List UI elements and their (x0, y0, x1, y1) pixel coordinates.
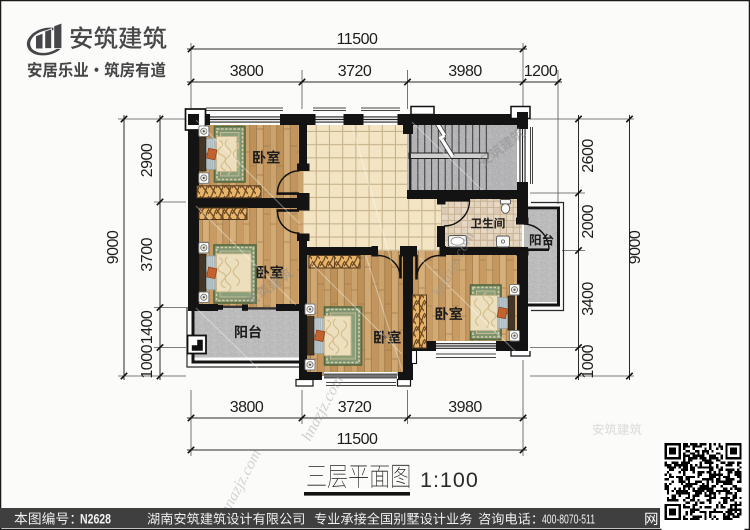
svg-text:1000: 1000 (139, 344, 156, 378)
svg-text:1200: 1200 (524, 63, 558, 80)
svg-text:2000: 2000 (580, 204, 597, 238)
svg-text:400-8070-511: 400-8070-511 (542, 511, 595, 526)
svg-text:11500: 11500 (337, 431, 378, 448)
svg-text:3720: 3720 (338, 63, 372, 80)
svg-text:2600: 2600 (580, 139, 597, 173)
svg-text:2900: 2900 (139, 143, 156, 177)
svg-text:3800: 3800 (230, 399, 264, 416)
svg-text:1:100: 1:100 (420, 468, 479, 492)
svg-text:3720: 3720 (338, 399, 372, 416)
svg-text:N2628: N2628 (80, 511, 111, 526)
svg-text:3800: 3800 (230, 63, 264, 80)
svg-text:9000: 9000 (105, 230, 122, 264)
svg-text:3980: 3980 (448, 399, 482, 416)
svg-text:3980: 3980 (448, 63, 482, 80)
svg-text:9000: 9000 (627, 230, 644, 264)
svg-text:1000: 1000 (580, 344, 597, 378)
svg-text:1400: 1400 (139, 310, 156, 344)
svg-text:11500: 11500 (337, 31, 378, 48)
svg-text:3400: 3400 (580, 282, 597, 316)
svg-text:3700: 3700 (139, 237, 156, 271)
